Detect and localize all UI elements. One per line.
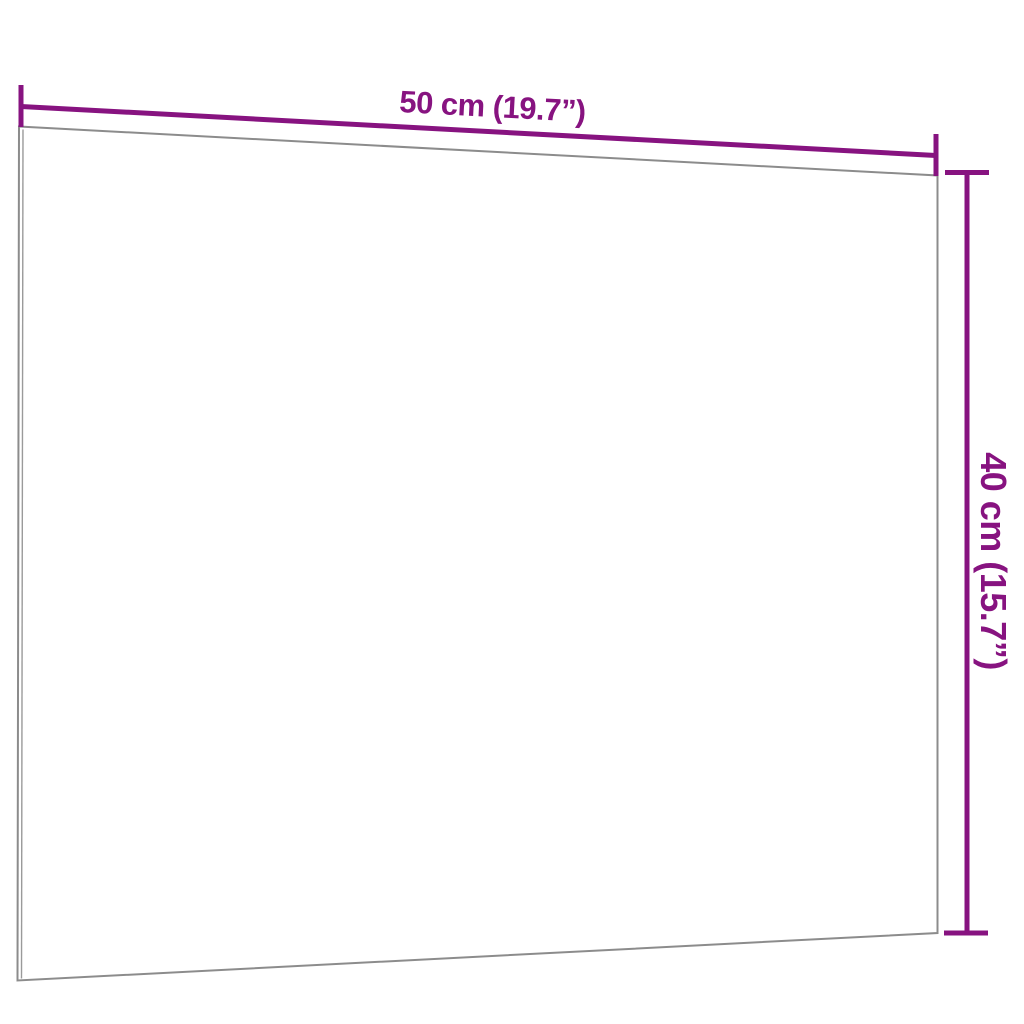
height-dimension: 40 cm (15.7”) [944, 173, 1014, 934]
height-dimension-label: 40 cm (15.7”) [973, 452, 1014, 670]
board-face [18, 127, 938, 981]
board [18, 127, 938, 981]
product-dimension-diagram: 50 cm (19.7”) 40 cm (15.7”) [0, 0, 1024, 1024]
diagram-canvas: 50 cm (19.7”) 40 cm (15.7”) [0, 0, 1024, 1024]
width-dimension-label: 50 cm (19.7”) [399, 84, 587, 129]
